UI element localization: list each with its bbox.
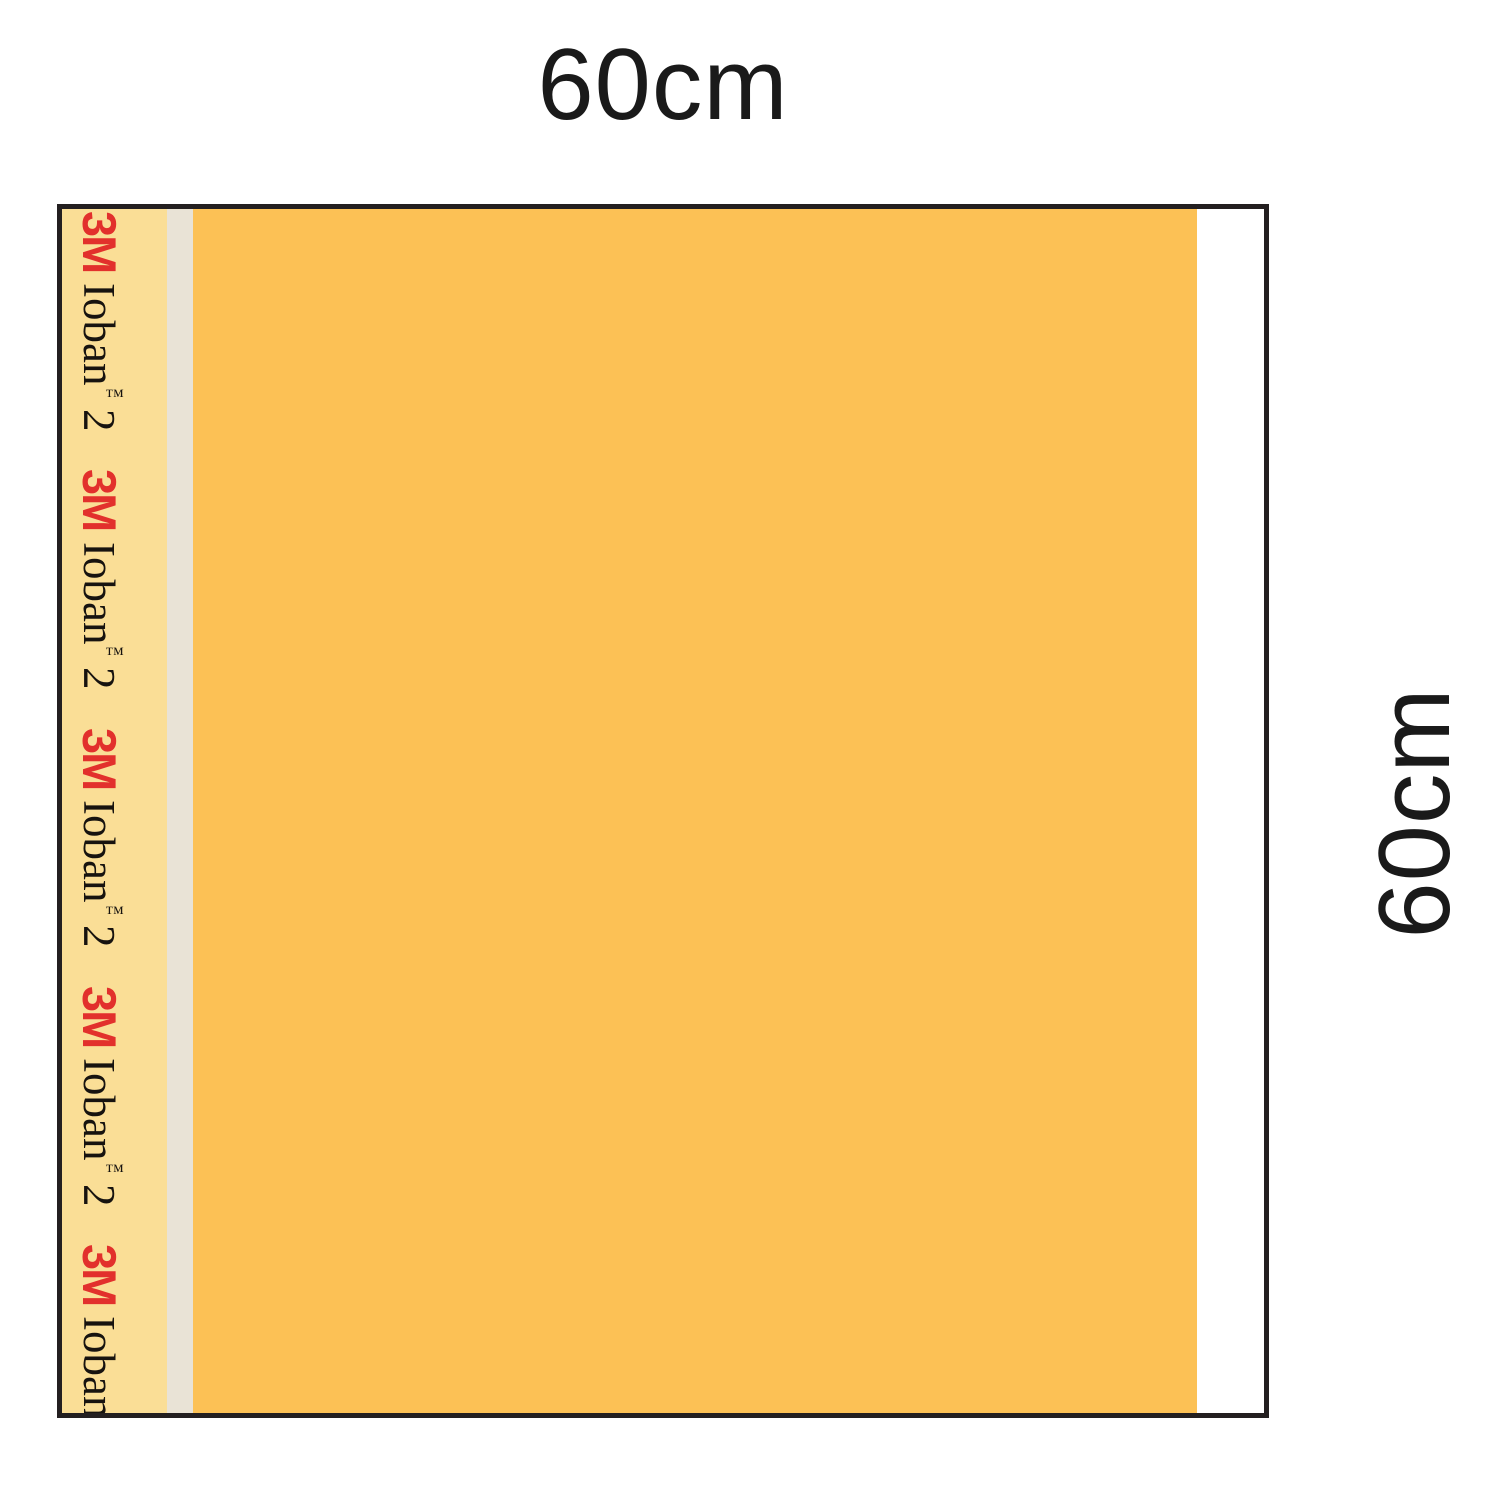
- edge-brand-text: 3MIoban™2: [91, 986, 108, 1206]
- width-dimension-label: 60cm: [57, 30, 1269, 140]
- 3m-logo: 3M: [73, 1244, 126, 1305]
- product-name: Ioban: [74, 542, 124, 644]
- 3m-logo: 3M: [73, 211, 126, 272]
- product-version: 2: [74, 409, 124, 432]
- product-name: Ioban: [74, 1058, 124, 1160]
- trademark-symbol: ™: [104, 902, 125, 923]
- paper-border-strip: 3MIoban™23MIoban™23MIoban™23MIoban™23MIo…: [62, 209, 167, 1413]
- 3m-logo: 3M: [73, 728, 126, 789]
- trademark-symbol: ™: [104, 644, 125, 665]
- product-name: Ioban: [74, 283, 124, 385]
- product-version: 2: [74, 1184, 124, 1207]
- product-version: 2: [74, 667, 124, 690]
- diagram-canvas: 60cm 60cm 3MIoban™23MIoban™23MIoban™23MI…: [0, 0, 1500, 1500]
- 3m-logo: 3M: [73, 986, 126, 1047]
- incise-film-area: [193, 209, 1197, 1413]
- edge-brand-text: 3MIoban™2: [91, 1244, 108, 1413]
- edge-brand-text: 3MIoban™2: [91, 469, 108, 689]
- trademark-symbol: ™: [104, 1161, 125, 1182]
- 3m-logo: 3M: [73, 469, 126, 530]
- trademark-symbol: ™: [104, 386, 125, 407]
- edge-brand-text: 3MIoban™2: [91, 211, 108, 431]
- edge-branding-strip: 3MIoban™23MIoban™23MIoban™23MIoban™23MIo…: [62, 211, 167, 1413]
- height-dimension-label: 60cm: [1360, 663, 1470, 963]
- divider-band: [167, 209, 193, 1413]
- drape-outline: 3MIoban™23MIoban™23MIoban™23MIoban™23MIo…: [57, 204, 1269, 1418]
- product-name: Ioban: [74, 800, 124, 902]
- product-name: Ioban: [74, 1316, 124, 1413]
- handle-strip: [1197, 209, 1264, 1413]
- product-version: 2: [74, 925, 124, 948]
- edge-brand-text: 3MIoban™2: [91, 728, 108, 948]
